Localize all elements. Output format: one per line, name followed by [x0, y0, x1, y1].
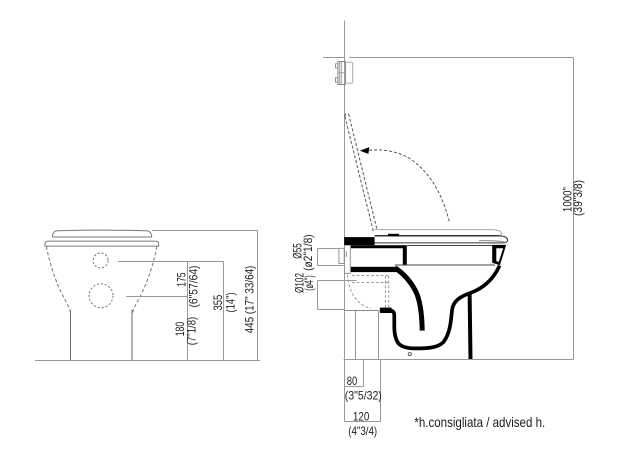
svg-text:80: 80	[347, 374, 358, 388]
svg-text:(4"3/4): (4"3/4)	[348, 424, 377, 438]
svg-text:(6"57/64): (6"57/64)	[186, 266, 200, 308]
svg-text:(39"3/8): (39"3/8)	[571, 180, 585, 216]
svg-text:*h.consigliata / advised h.: *h.consigliata / advised h.	[414, 414, 545, 430]
svg-text:120: 120	[353, 410, 370, 424]
svg-text:(3"5/32): (3"5/32)	[345, 388, 382, 402]
svg-text:(7"1/8): (7"1/8)	[185, 317, 199, 346]
svg-text:(ø4"): (ø4")	[302, 275, 316, 291]
svg-text:445 (17" 33/64): 445 (17" 33/64)	[243, 266, 257, 334]
svg-text:(ø2"1/8): (ø2"1/8)	[301, 234, 315, 271]
svg-text:(14"): (14")	[224, 292, 238, 312]
